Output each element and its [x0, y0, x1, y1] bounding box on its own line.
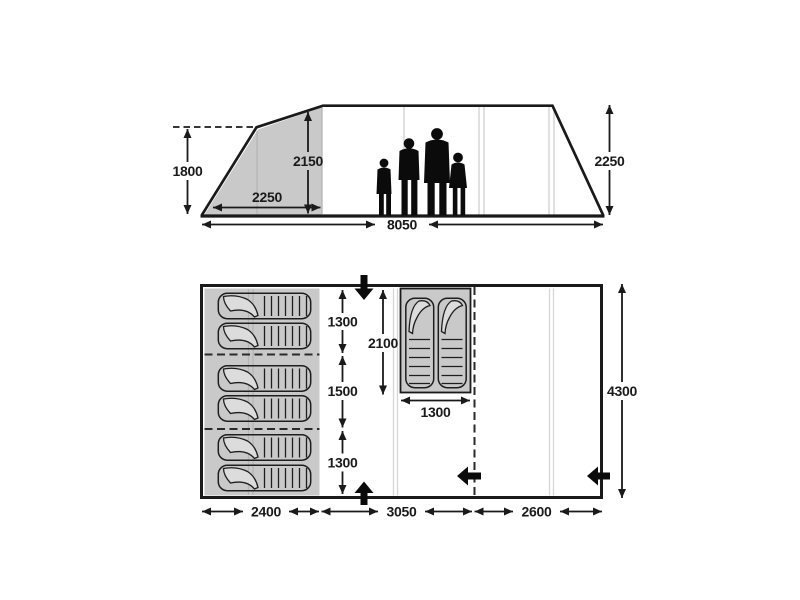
- dimension-total-depth: 4300: [607, 284, 637, 498]
- dimension-right-height: 2250: [595, 105, 625, 215]
- left-bedroom-shaded-area: [205, 289, 320, 496]
- dimension-label: 1300: [328, 455, 358, 471]
- dimension-left-section-2: 1500: [328, 356, 358, 428]
- dimension-bottom-section-3: 2600: [475, 504, 603, 520]
- dimension-label: 1500: [328, 383, 358, 399]
- dimension-bottom-section-1: 2400: [202, 504, 319, 520]
- tent-floor-plan: 1300 1500 1300 2100 1300 4300: [202, 275, 638, 520]
- entrance-arrow-down-icon: [355, 275, 374, 300]
- dimension-label: 8050: [387, 217, 417, 233]
- entrance-arrows: [355, 275, 611, 505]
- person-silhouette-girl: [377, 159, 392, 216]
- entrance-arrow-up-icon: [355, 482, 374, 506]
- dimension-label: 2250: [595, 153, 625, 169]
- entrance-arrow-left-icon: [457, 467, 481, 486]
- tent-side-elevation: 1800 2150 2250 2250 8050: [173, 105, 625, 233]
- family-silhouette-icon: [377, 128, 468, 215]
- dimension-bottom-section-2: 3050: [322, 504, 473, 520]
- dimension-label: 1300: [421, 404, 451, 420]
- dimension-label: 2400: [251, 504, 281, 520]
- person-silhouette-woman: [399, 138, 420, 215]
- tent-dimensions-diagram: 1800 2150 2250 2250 8050: [0, 0, 800, 600]
- dimension-left-section-1: 1300: [328, 290, 358, 353]
- dimension-label: 4300: [607, 383, 637, 399]
- dimension-label: 2100: [368, 335, 398, 351]
- dimension-label: 1800: [173, 163, 203, 179]
- dimension-label: 2600: [522, 504, 552, 520]
- dimension-total-length: 8050: [202, 217, 603, 233]
- person-silhouette-man: [424, 128, 450, 215]
- person-silhouette-child: [449, 153, 467, 216]
- dimension-left-height: 1800: [173, 129, 203, 214]
- dimension-label: 2250: [252, 189, 282, 205]
- dimension-label: 1300: [328, 314, 358, 330]
- dimension-inner-bedroom-width: 1300: [401, 401, 470, 421]
- inner-bedroom: [401, 289, 471, 393]
- diagram-canvas: 1800 2150 2250 2250 8050: [0, 0, 800, 600]
- dimension-label: 3050: [387, 504, 417, 520]
- dimension-left-section-3: 1300: [328, 431, 358, 494]
- dimension-label: 2150: [293, 153, 323, 169]
- entrance-arrow-left-icon: [587, 467, 610, 486]
